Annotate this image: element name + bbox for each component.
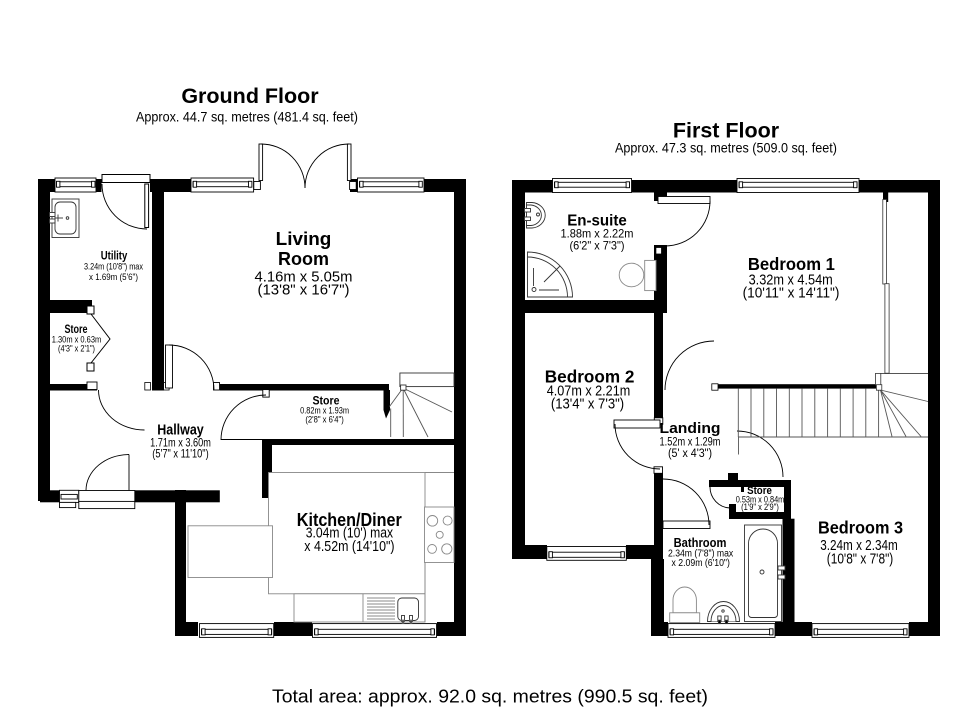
svg-text:Bedroom 1: Bedroom 1 (748, 254, 835, 274)
svg-text:(5'7" x 11'10"): (5'7" x 11'10") (152, 447, 208, 461)
svg-text:x 1.69m (5'6"): x 1.69m (5'6") (89, 272, 138, 282)
svg-text:Approx. 47.3 sq. metres (509.0: Approx. 47.3 sq. metres (509.0 sq. feet) (615, 141, 837, 156)
svg-text:(13'8" x 16'7"): (13'8" x 16'7") (258, 282, 350, 298)
svg-text:Room: Room (278, 248, 329, 269)
svg-text:First Floor: First Floor (673, 119, 780, 143)
svg-text:3.24m (10'8") max: 3.24m (10'8") max (84, 262, 143, 272)
svg-text:Approx. 44.7 sq. metres (481.4: Approx. 44.7 sq. metres (481.4 sq. feet) (136, 110, 358, 125)
svg-text:Total area: approx. 92.0 sq. m: Total area: approx. 92.0 sq. metres (990… (272, 686, 708, 707)
svg-text:(13'4" x 7'3"): (13'4" x 7'3") (551, 397, 624, 413)
svg-text:(1'9" x 2'9"): (1'9" x 2'9") (741, 502, 779, 512)
svg-text:(2'8" x 6'4"): (2'8" x 6'4") (305, 415, 343, 425)
svg-text:(10'11" x 14'11"): (10'11" x 14'11") (743, 285, 840, 301)
svg-text:(6'2" x 7'3"): (6'2" x 7'3") (570, 238, 625, 252)
svg-text:Bedroom 3: Bedroom 3 (818, 518, 903, 538)
svg-text:Living: Living (276, 228, 332, 249)
svg-text:1.52m x 1.29m: 1.52m x 1.29m (660, 437, 721, 449)
svg-text:(4'3" x 2'1"): (4'3" x 2'1") (58, 344, 95, 354)
svg-text:(10'8" x 7'8"): (10'8" x 7'8") (827, 552, 894, 568)
svg-text:x 4.52m (14'10"): x 4.52m (14'10") (304, 539, 394, 555)
svg-text:(5' x 4'3"): (5' x 4'3") (668, 448, 712, 460)
svg-text:Landing: Landing (660, 421, 721, 437)
svg-text:Ground Floor: Ground Floor (181, 84, 319, 108)
svg-text:x 2.09m (6'10"): x 2.09m (6'10") (672, 558, 730, 569)
